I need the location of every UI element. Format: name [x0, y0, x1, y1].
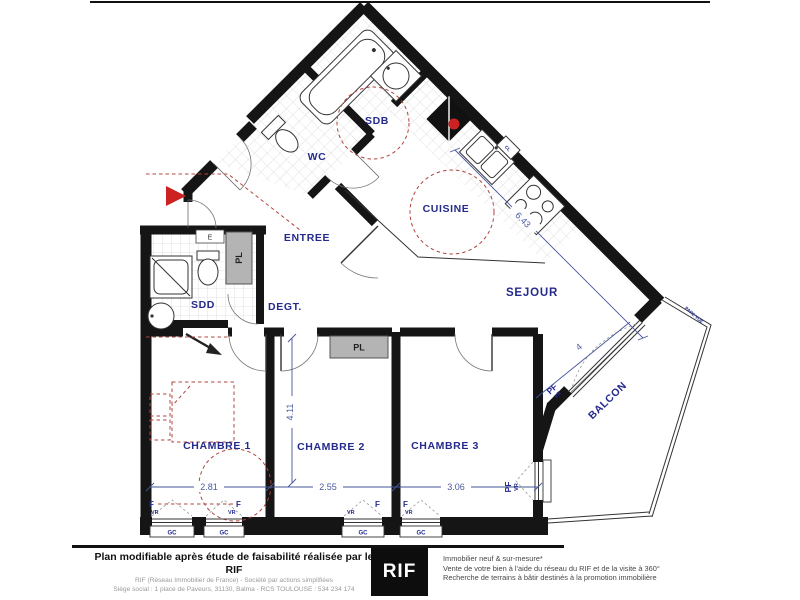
room-label-sdd: SDD [191, 299, 215, 311]
ch3-door-arc [455, 334, 492, 371]
floorplan-page: BALCON PARE VUE PF [0, 0, 800, 600]
footer-right: Immobilier neuf & sur-mesure* Vente de v… [443, 554, 743, 583]
dim-ch1: 2.81 [200, 482, 218, 492]
tap [150, 314, 153, 317]
rif-logo: RIF [371, 548, 428, 596]
footer-left: Plan modifiable après étude de faisabili… [88, 551, 380, 594]
footer-title: Plan modifiable après étude de faisabili… [88, 551, 380, 577]
room-label-cuisine: CUISINE [423, 203, 470, 215]
f-label: F [236, 500, 241, 509]
footer-company-line: RIF (Réseau Immobilier de France) - Soci… [88, 577, 380, 586]
room-label-degt: DEGT. [268, 301, 302, 313]
nightstand [150, 394, 170, 416]
room-label-entree: ENTREE [284, 232, 330, 244]
floorplan-svg: BALCON PARE VUE PF [0, 0, 800, 547]
dim-depth: 4.11 [285, 404, 295, 421]
footer-service-3: Recherche de terrains à bâtir destinés à… [443, 573, 743, 583]
ch2-door-arc [281, 334, 318, 371]
electrical-box-label: E [208, 235, 213, 242]
sdb-door-arc [328, 177, 379, 188]
room-label-chambre3: CHAMBRE 3 [411, 440, 479, 452]
footer-divider [72, 545, 564, 548]
gc-label: GC [220, 531, 230, 537]
room-label-sejour: SEJOUR [506, 287, 558, 299]
window-ch3-right: PF VR [503, 460, 551, 502]
room-label-chambre2: CHAMBRE 2 [297, 441, 365, 453]
sdd-ch1-arrow [186, 334, 222, 355]
f-label: F [403, 500, 408, 509]
footer-service-1: Immobilier neuf & sur-mesure* [443, 554, 743, 564]
sejour-window: PF VR [545, 320, 645, 401]
room-label-wc: WC [308, 151, 327, 163]
room-label-sdb: SDB [365, 115, 389, 127]
sejour-door-leaf [341, 226, 378, 263]
footer-service-2: Vente de votre bien à l'aide du réseau d… [443, 564, 743, 574]
sejour-door-arc [341, 263, 378, 278]
dim-ch2: 2.55 [319, 482, 337, 492]
room-label-chambre1: CHAMBRE 1 [183, 440, 251, 452]
nightstand [150, 420, 170, 440]
vr-label: VR [347, 510, 355, 516]
room-label-balcon: BALCON [586, 380, 629, 422]
gc-label: GC [168, 531, 178, 537]
rif-logo-text: RIF [383, 561, 417, 583]
f-label: F [149, 500, 154, 509]
f-label: F [375, 500, 380, 509]
vr-label: VR [405, 510, 413, 516]
dim-ch3: 3.06 [447, 482, 465, 492]
vr-label: VR [228, 510, 236, 516]
toilet [198, 259, 218, 285]
bed [172, 382, 234, 442]
gc-label: GC [359, 531, 369, 537]
ch1-door-arc [229, 334, 266, 371]
closet-pl-label: PL [353, 343, 365, 353]
wall [533, 500, 543, 535]
closet-pl-label: PL [234, 252, 244, 264]
wall [638, 299, 658, 319]
entrance-door-arc [188, 200, 216, 228]
top-border [90, 1, 710, 3]
wall-entree-cuisine [338, 186, 375, 223]
vr-label: VR [151, 510, 159, 516]
footer-address-line: Siège social : 1 place de Paveurs, 31130… [88, 586, 380, 595]
gc-label: GC [417, 531, 427, 537]
